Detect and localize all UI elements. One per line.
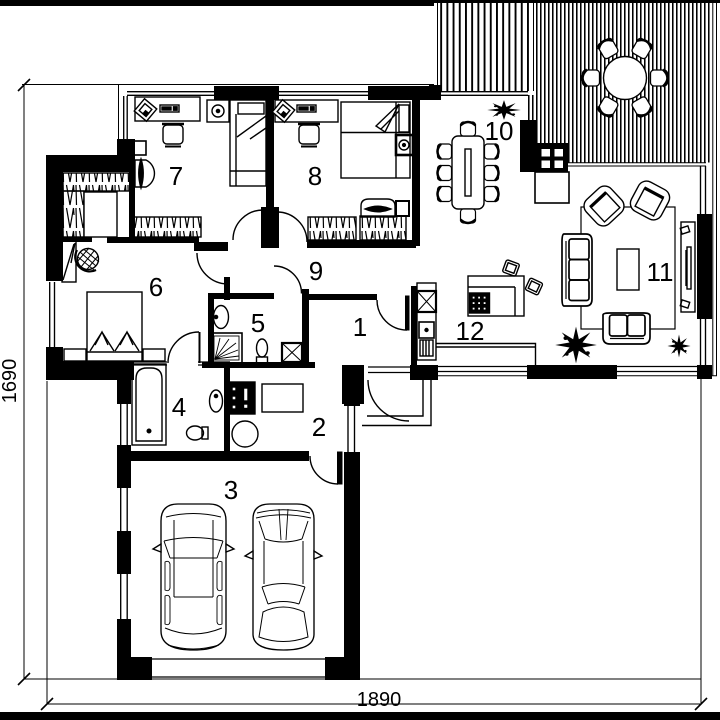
- svg-text:1890: 1890: [357, 689, 402, 711]
- svg-text:4: 4: [172, 392, 186, 422]
- svg-text:9: 9: [309, 256, 323, 286]
- svg-text:8: 8: [308, 161, 322, 191]
- svg-text:6: 6: [149, 272, 163, 302]
- svg-text:3: 3: [224, 475, 238, 505]
- svg-text:1: 1: [353, 312, 367, 342]
- svg-text:7: 7: [169, 161, 183, 191]
- svg-text:11: 11: [647, 257, 674, 287]
- svg-text:10: 10: [485, 116, 514, 146]
- svg-text:1690: 1690: [0, 359, 21, 404]
- svg-text:2: 2: [312, 412, 326, 442]
- svg-text:12: 12: [456, 316, 485, 346]
- svg-text:5: 5: [251, 308, 265, 338]
